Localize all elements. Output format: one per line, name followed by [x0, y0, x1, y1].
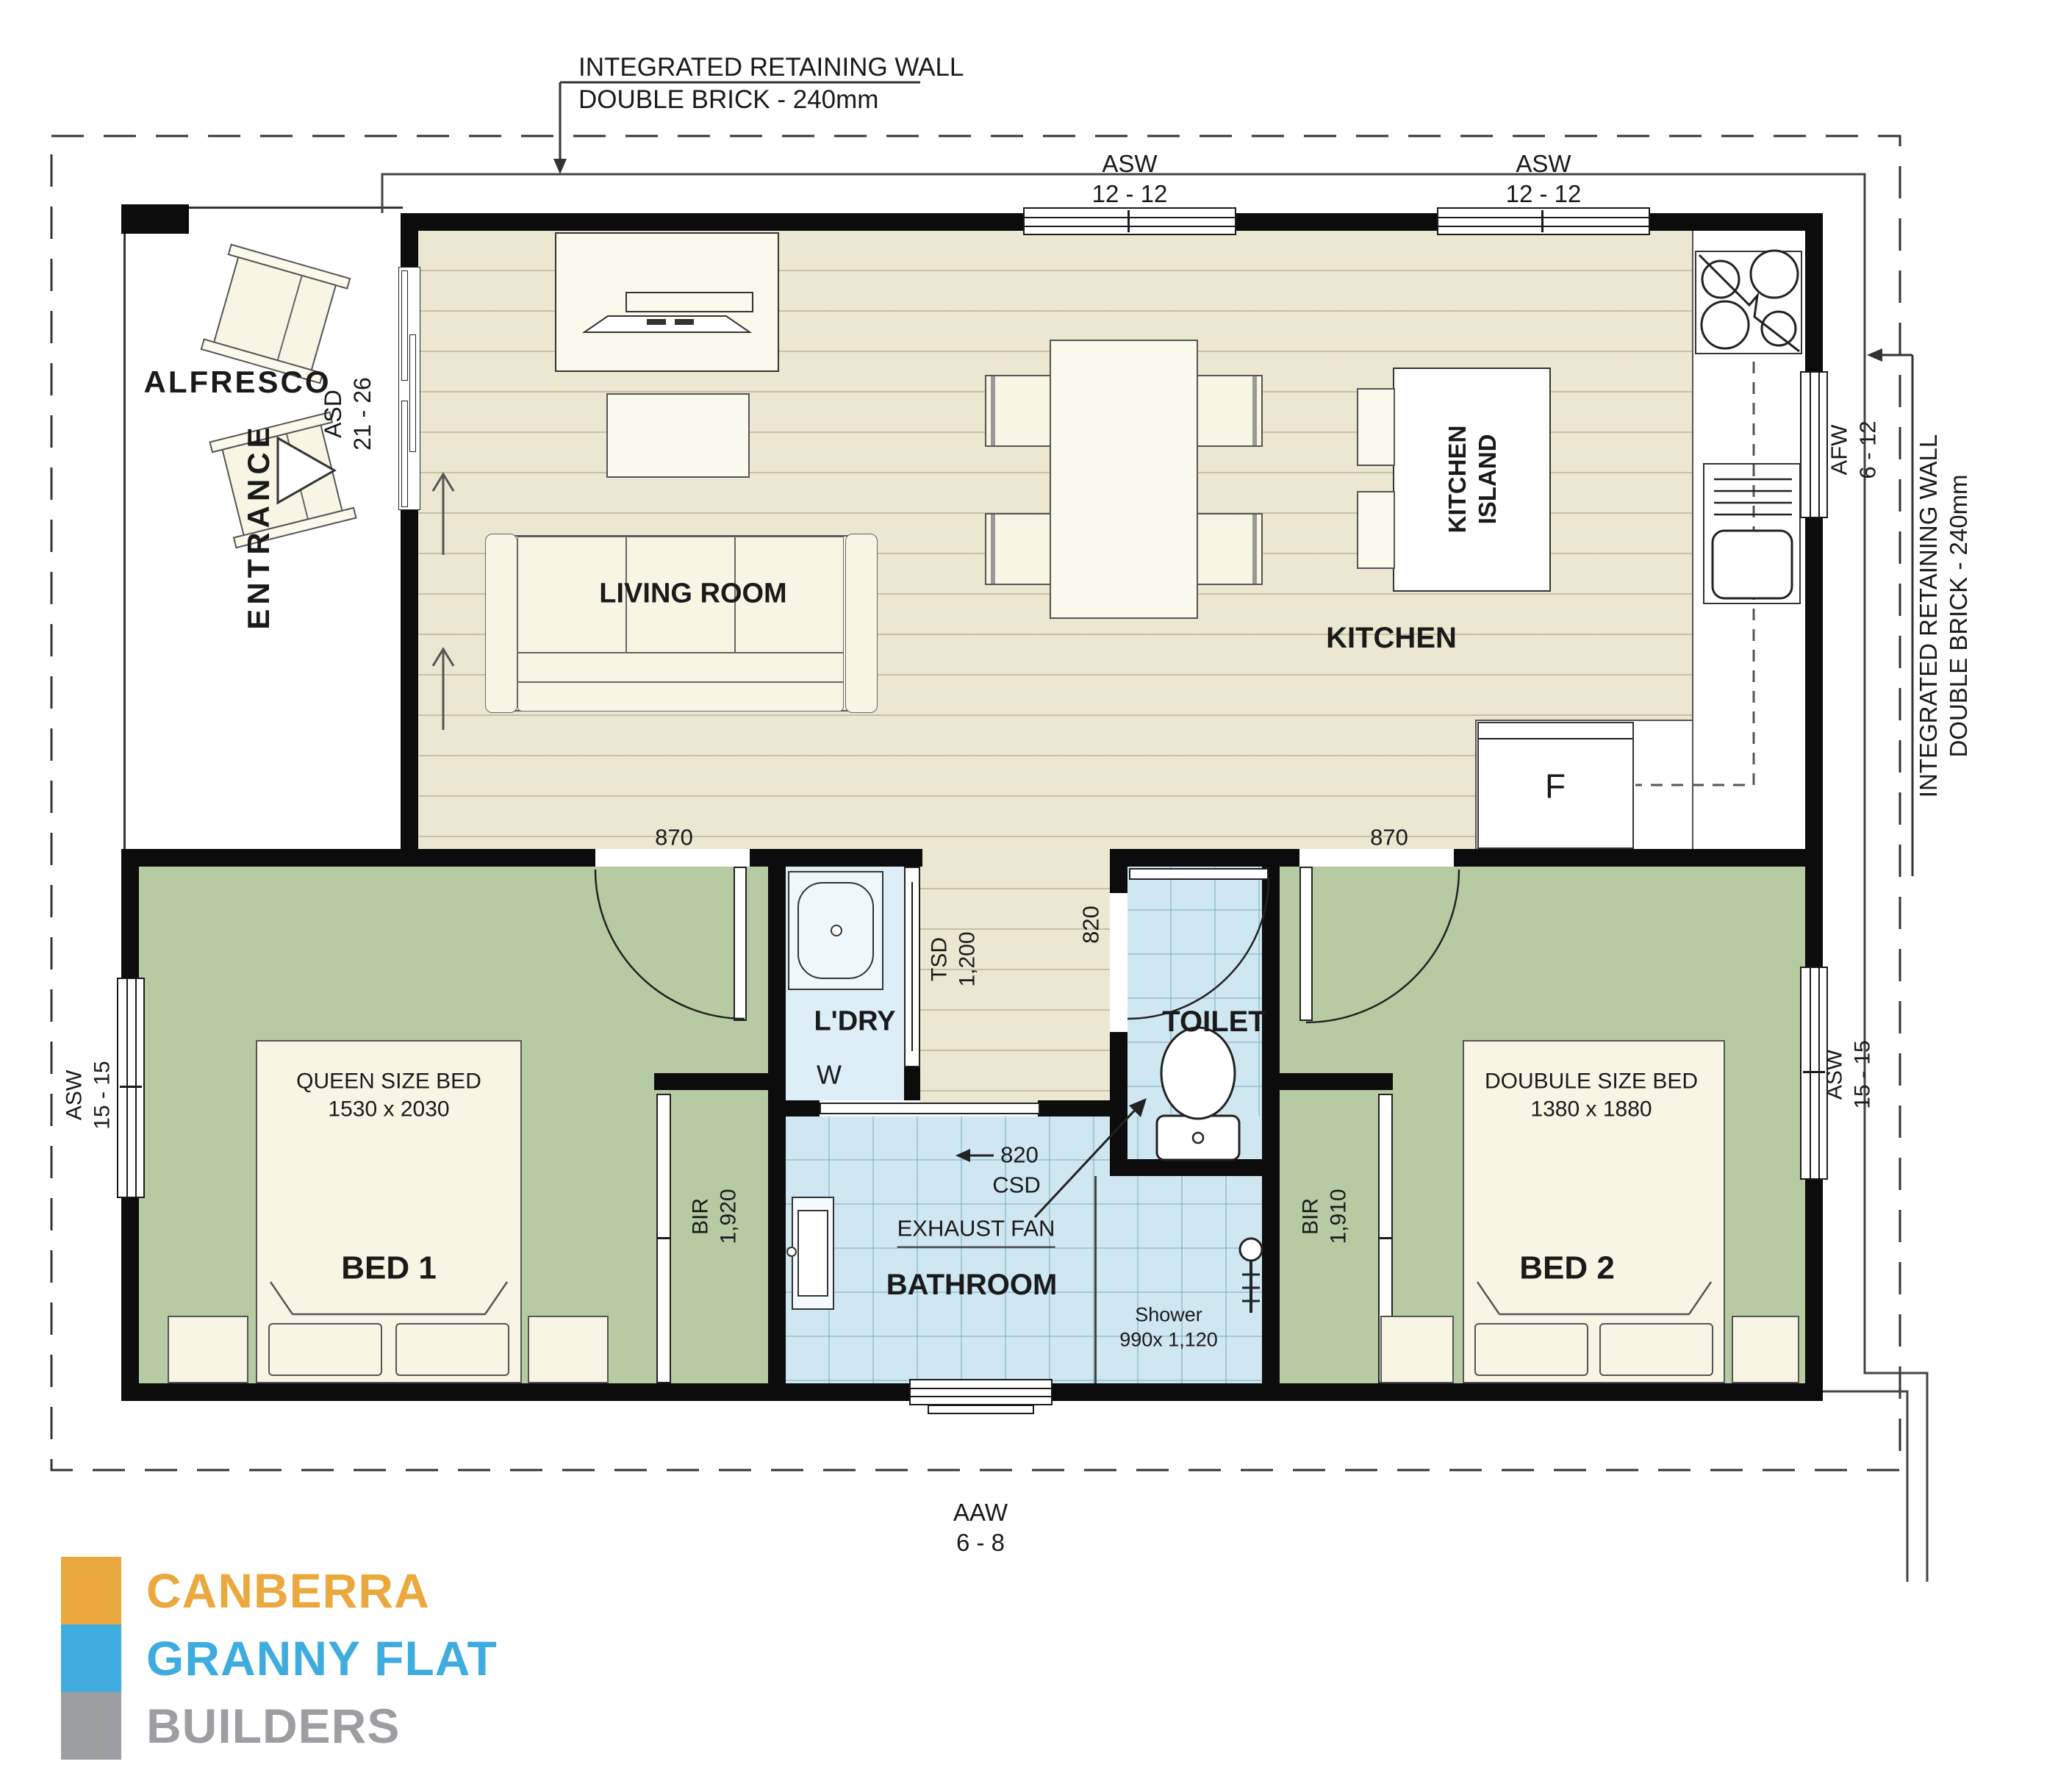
plan-linework-layer — [0, 0, 2058, 1792]
retaining-right-leader — [1879, 355, 1912, 876]
tv-screen — [584, 316, 750, 332]
shower-line1: Shower — [1119, 1302, 1218, 1327]
bathroom-label: BATHROOM — [886, 1266, 1058, 1303]
retaining-right-line1: INTEGRATED RETAINING WALL — [1913, 434, 1943, 798]
logo-bar-blue — [61, 1624, 121, 1692]
asw-left-code: ASW — [61, 1061, 89, 1129]
afw-size: 6 - 12 — [1854, 420, 1882, 479]
bed2-name-label: BED 2 — [1519, 1248, 1615, 1289]
retaining-top-arrowhead — [553, 159, 567, 174]
bed2-door-arc — [1306, 870, 1459, 1022]
asw-left-label: ASW 15 - 15 — [61, 1061, 116, 1129]
bed1-name-label: BED 1 — [341, 1248, 437, 1289]
laundry-label: L'DRY — [814, 1004, 895, 1039]
bed1-door-arc — [595, 870, 745, 1019]
toilet-label: TOILET — [1162, 1003, 1266, 1040]
island-line2: ISLAND — [1472, 426, 1502, 534]
csd-arrow — [955, 1149, 994, 1162]
island-line1: KITCHEN — [1442, 426, 1472, 534]
bed2-type-label: DOUBULE SIZE BED 1380 x 1880 — [1485, 1068, 1698, 1123]
bed1-type-label: QUEEN SIZE BED 1530 x 2030 — [296, 1068, 481, 1123]
alfresco-label: ALFRESCO — [144, 363, 331, 402]
retaining-top-line2: DOUBLE BRICK - 240mm — [578, 84, 964, 116]
floor-plan-page: INTEGRATED RETAINING WALL DOUBLE BRICK -… — [0, 0, 2058, 1792]
toilet-button — [1193, 1133, 1203, 1143]
asw-right-label: ASW 15 - 15 — [1821, 1040, 1876, 1108]
shower-head-icon — [1240, 1239, 1262, 1313]
logo-bar-gray — [61, 1692, 121, 1760]
tsd-code: TSD — [926, 931, 954, 986]
asd-size: 21 - 26 — [348, 377, 377, 451]
asd-code: ASD — [318, 377, 348, 451]
aaw-size: 6 - 8 — [953, 1527, 1008, 1558]
exhaust-fan-label: EXHAUST FAN — [897, 1215, 1055, 1248]
company-logo: CANBERRA GRANNY FLAT BUILDERS — [61, 1557, 649, 1770]
bir2-size: 1,910 — [1324, 1189, 1352, 1244]
tsd-size: 1,200 — [953, 931, 981, 986]
entrance-label: ENTRANCE — [240, 423, 279, 629]
retaining-top-label: INTEGRATED RETAINING WALL DOUBLE BRICK -… — [578, 51, 964, 116]
cooktop-burners — [1702, 251, 1798, 348]
asw-top2-size: 12 - 12 — [1506, 179, 1582, 209]
csd-size-label: 820 — [1000, 1141, 1039, 1170]
shower-label: Shower 990x 1,120 — [1119, 1302, 1218, 1352]
retaining-wall-outline — [382, 174, 1927, 1582]
toilet-door-size-label: 820 — [1078, 906, 1106, 944]
sink-basin — [1713, 531, 1792, 598]
asw-left-size: 15 - 15 — [88, 1061, 116, 1129]
asw-top1-size: 12 - 12 — [1092, 179, 1168, 209]
bir1-size: 1,920 — [714, 1189, 742, 1244]
retaining-top-line1: INTEGRATED RETAINING WALL — [578, 51, 964, 84]
bed2-type: DOUBULE SIZE BED — [1485, 1068, 1698, 1096]
asw-right-code: ASW — [1821, 1040, 1849, 1108]
asw-right-size: 15 - 15 — [1849, 1040, 1876, 1108]
bir2-code: BIR — [1297, 1189, 1325, 1244]
bed1-door-size-label: 870 — [655, 824, 693, 853]
asw-top1-code: ASW — [1092, 148, 1168, 179]
bir1-label: BIR 1,920 — [687, 1189, 742, 1244]
asw-top2-label: ASW 12 - 12 — [1506, 148, 1582, 209]
aaw-code: AAW — [953, 1497, 1008, 1527]
living-room-label: LIVING ROOM — [599, 576, 786, 612]
tv-foot-1 — [647, 319, 666, 325]
asw-top1-label: ASW 12 - 12 — [1092, 148, 1168, 209]
toilet-door-arc — [1127, 878, 1269, 1019]
aaw-label: AAW 6 - 8 — [953, 1497, 1008, 1558]
bed1-type: QUEEN SIZE BED — [296, 1068, 481, 1096]
afw-label: AFW 6 - 12 — [1825, 420, 1882, 479]
retaining-right-line2: DOUBLE BRICK - 240mm — [1943, 434, 1973, 798]
logo-line2: GRANNY FLAT — [146, 1630, 498, 1686]
bed1-dims: 1530 x 2030 — [296, 1095, 481, 1123]
logo-line1: CANBERRA — [146, 1563, 430, 1619]
floor-direction-arrow-2 — [433, 649, 453, 730]
retaining-right-arrowhead — [1867, 348, 1882, 362]
logo-bar-orange — [61, 1557, 121, 1624]
asw-top2-code: ASW — [1506, 148, 1582, 179]
bed2-door-size-label: 870 — [1370, 824, 1408, 853]
washer-label: W — [817, 1058, 842, 1092]
shower-line2: 990x 1,120 — [1119, 1327, 1218, 1352]
floor-direction-arrow-1 — [433, 474, 453, 555]
fridge-label: F — [1545, 765, 1566, 808]
afw-code: AFW — [1825, 420, 1854, 479]
toilet-bowl — [1161, 1028, 1235, 1119]
bir2-label: BIR 1,910 — [1297, 1189, 1352, 1244]
asd-label: ASD 21 - 26 — [318, 377, 377, 451]
csd-code-label: CSD — [992, 1172, 1040, 1200]
bir1-code: BIR — [687, 1189, 715, 1244]
tsd-label: TSD 1,200 — [926, 931, 981, 986]
exhaust-fan-arrow — [1035, 1098, 1147, 1217]
logo-line3: BUILDERS — [146, 1698, 400, 1754]
tv-foot-2 — [675, 319, 694, 325]
tv-soundbar — [626, 293, 753, 312]
kitchen-label: KITCHEN — [1326, 620, 1457, 656]
retaining-right-label: INTEGRATED RETAINING WALL DOUBLE BRICK -… — [1913, 434, 1974, 798]
kitchen-island-label: KITCHEN ISLAND — [1442, 426, 1503, 534]
bed2-dims: 1380 x 1880 — [1485, 1095, 1698, 1123]
